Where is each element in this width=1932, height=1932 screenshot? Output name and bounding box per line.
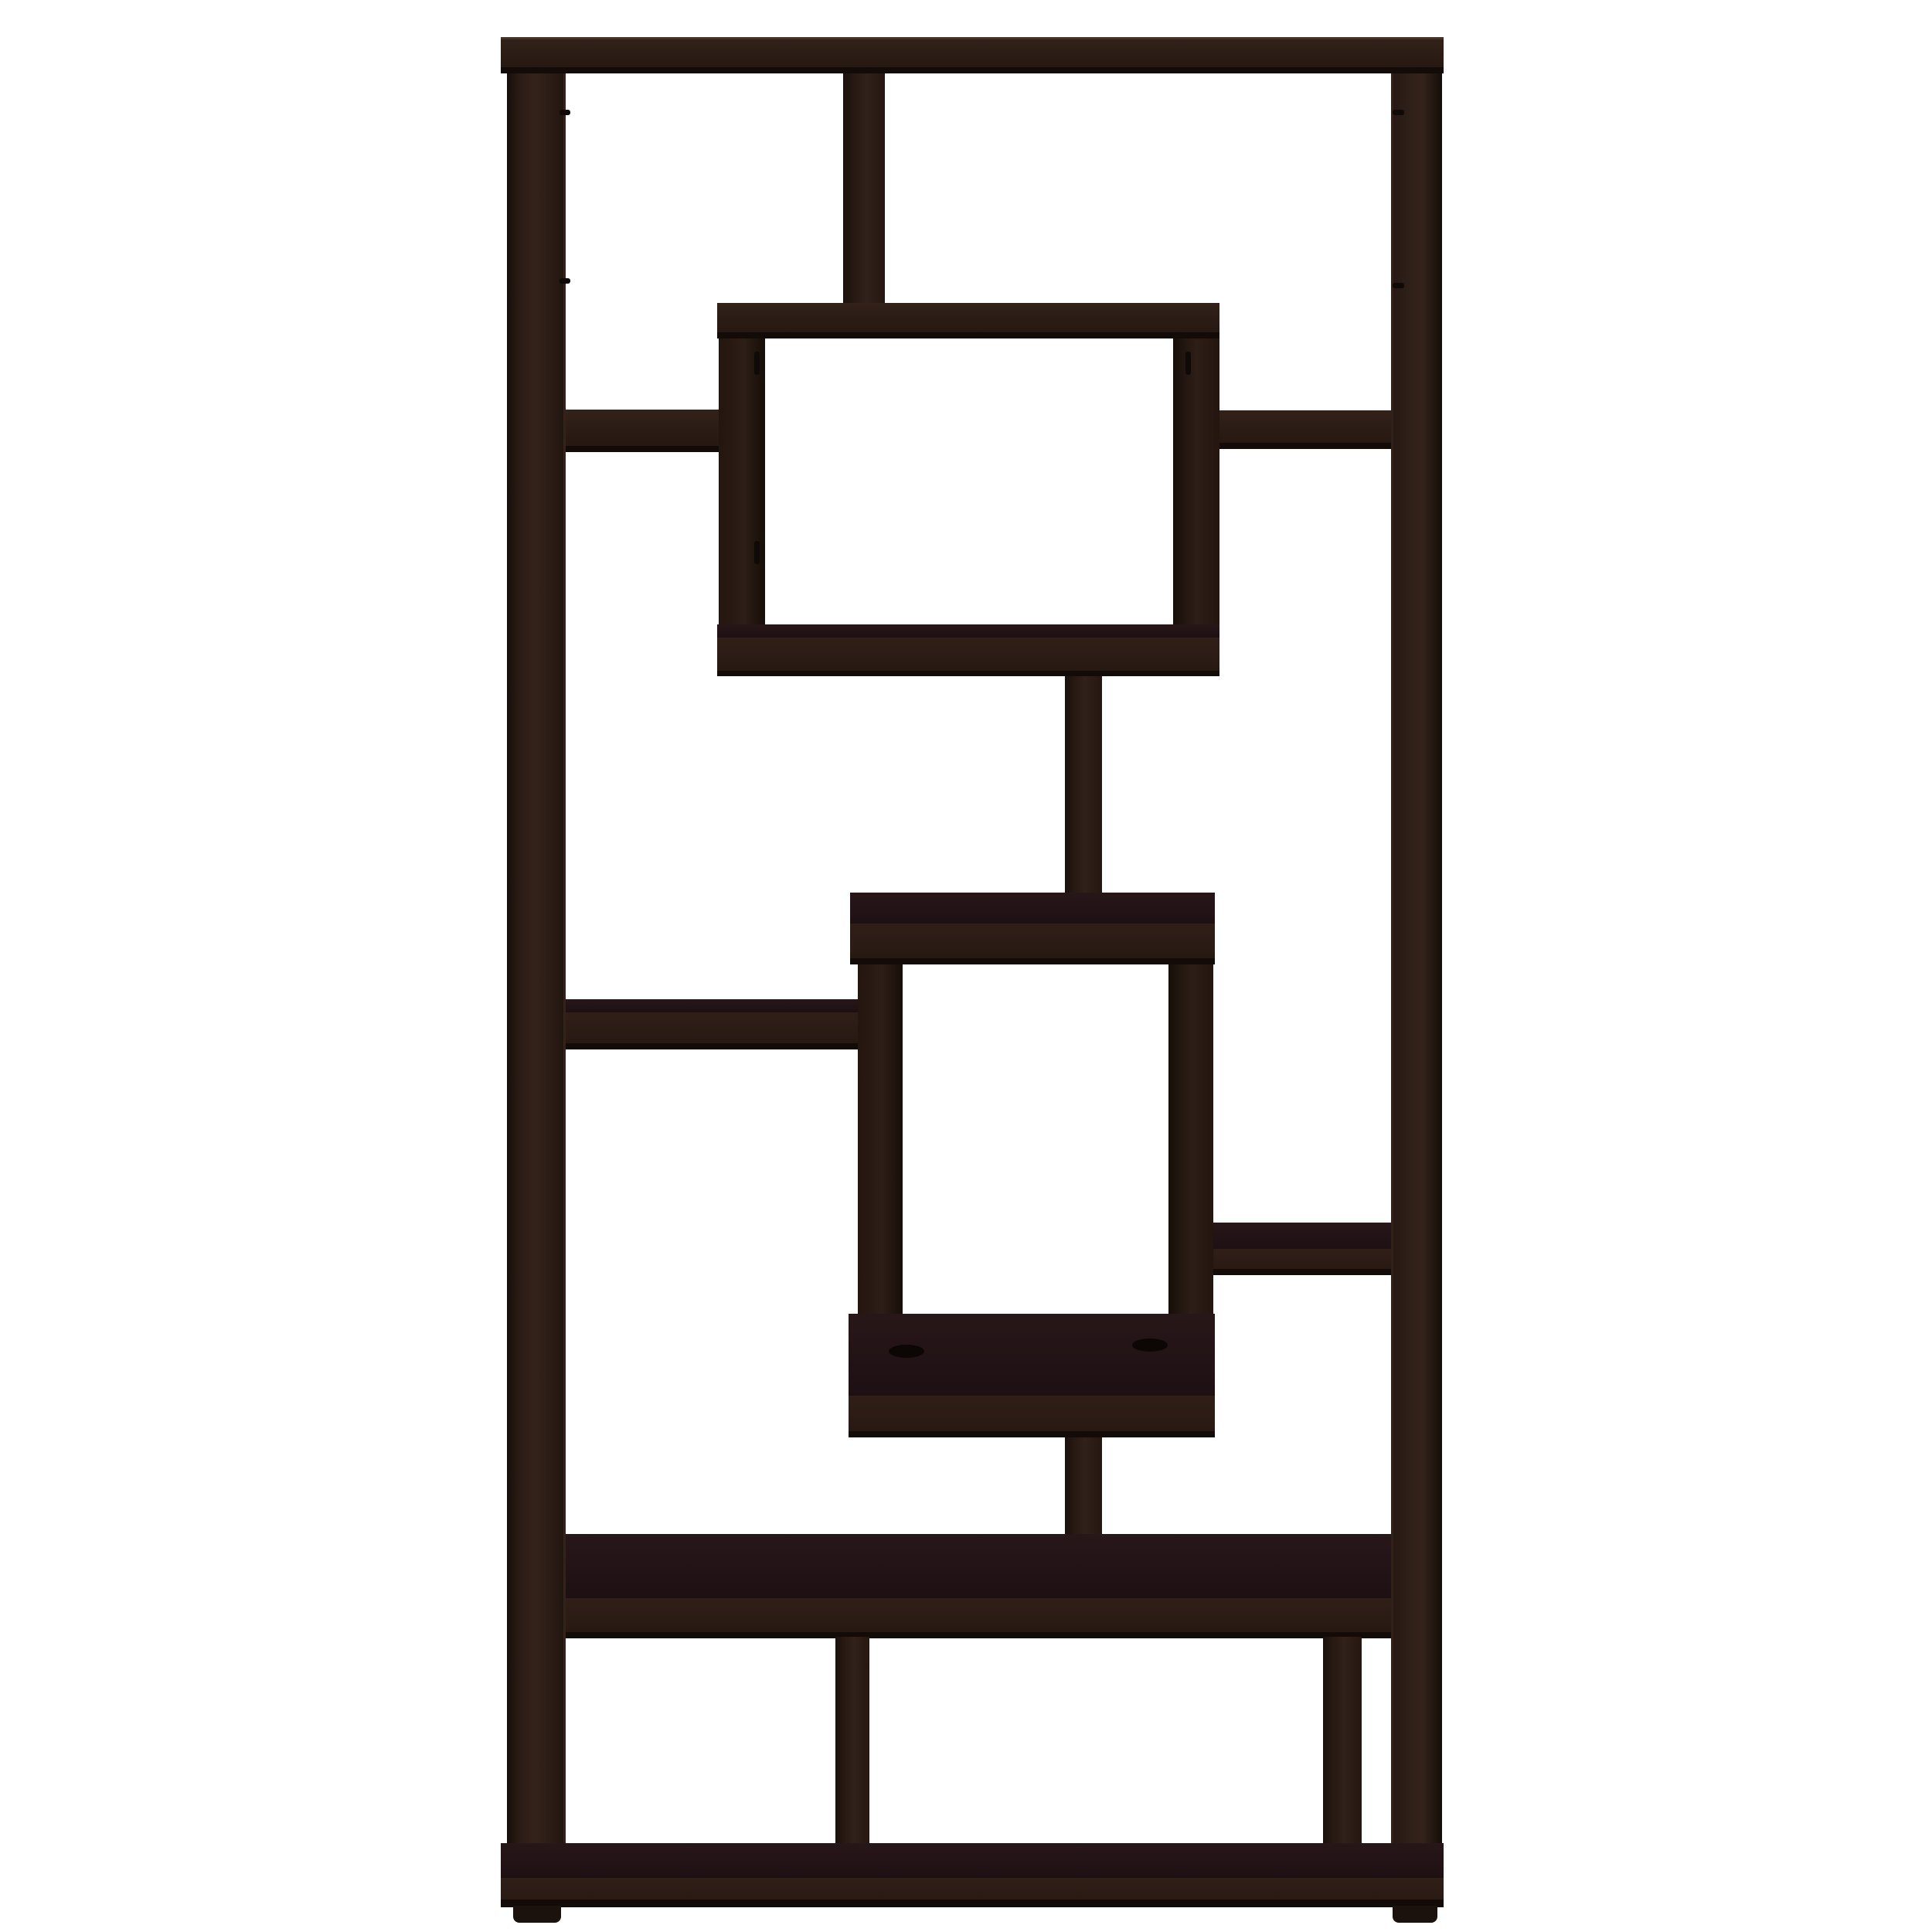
lower-box-top-board	[850, 893, 1215, 964]
cam-lock-mark-upper-2	[754, 541, 760, 564]
upper-box-bottom-board-top-face	[717, 624, 1219, 638]
bottom-divider-right	[1323, 1637, 1362, 1843]
upper-box-bottom-board	[717, 624, 1219, 676]
center-stem-upper	[1065, 676, 1102, 896]
top-board-edge	[501, 67, 1444, 73]
top-board	[501, 37, 1444, 73]
left-shelf-mid-top-face	[566, 999, 858, 1012]
center-stem-lower	[1065, 1437, 1102, 1534]
right-shelf-mid	[1213, 1223, 1391, 1275]
right-shelf-upper	[1219, 410, 1391, 449]
bottom-board-top-face	[501, 1843, 1444, 1878]
cam-lock-mark-upper-3	[1185, 352, 1191, 375]
shelf-pin-hole-left-2	[560, 278, 570, 284]
bottom-board-edge	[501, 1900, 1444, 1907]
shelf-pin-hole-right-1	[1393, 110, 1404, 115]
top-board-highlight	[501, 37, 1444, 39]
right-shelf-mid-top-face	[1213, 1223, 1391, 1249]
left-shelf-upper-edge	[566, 446, 719, 452]
upper-box-bottom-board-edge	[717, 671, 1219, 676]
shelf-pin-hole-right-2	[1393, 283, 1404, 288]
right-foot	[1393, 1906, 1437, 1923]
lower-box-left-wall	[858, 964, 903, 1314]
upper-box-right-wall	[1173, 338, 1219, 624]
lower-box-top-board-top-face	[850, 893, 1215, 923]
lower-box-top-board-edge	[850, 958, 1215, 964]
right-shelf-mid-edge	[1213, 1269, 1391, 1275]
upper-box-top-board-edge	[717, 332, 1219, 338]
lower-box-right-wall	[1168, 964, 1213, 1314]
shelf-pin-hole-left-1	[560, 110, 570, 115]
long-shelf	[566, 1534, 1391, 1638]
bottom-divider-left	[835, 1637, 869, 1843]
long-shelf-edge	[566, 1632, 1391, 1638]
bottom-board	[501, 1843, 1444, 1907]
left-shelf-mid	[566, 999, 858, 1049]
left-post	[507, 73, 566, 1843]
bookcase-product-photo	[0, 0, 1932, 1932]
cam-lock-mark-upper-1	[754, 352, 760, 375]
top-divider	[843, 73, 885, 303]
left-shelf-upper	[566, 410, 719, 452]
upper-box-top-board	[717, 303, 1219, 338]
left-foot	[513, 1906, 561, 1923]
long-shelf-top-face	[566, 1534, 1391, 1598]
lower-box-bottom-board	[849, 1314, 1215, 1437]
upper-box-left-wall	[719, 338, 765, 624]
screw-hole-left	[889, 1345, 924, 1358]
right-shelf-upper-edge	[1219, 443, 1391, 449]
right-post	[1391, 73, 1442, 1843]
screw-hole-right	[1132, 1338, 1168, 1352]
left-shelf-mid-edge	[566, 1043, 858, 1049]
lower-box-bottom-board-edge	[849, 1431, 1215, 1437]
